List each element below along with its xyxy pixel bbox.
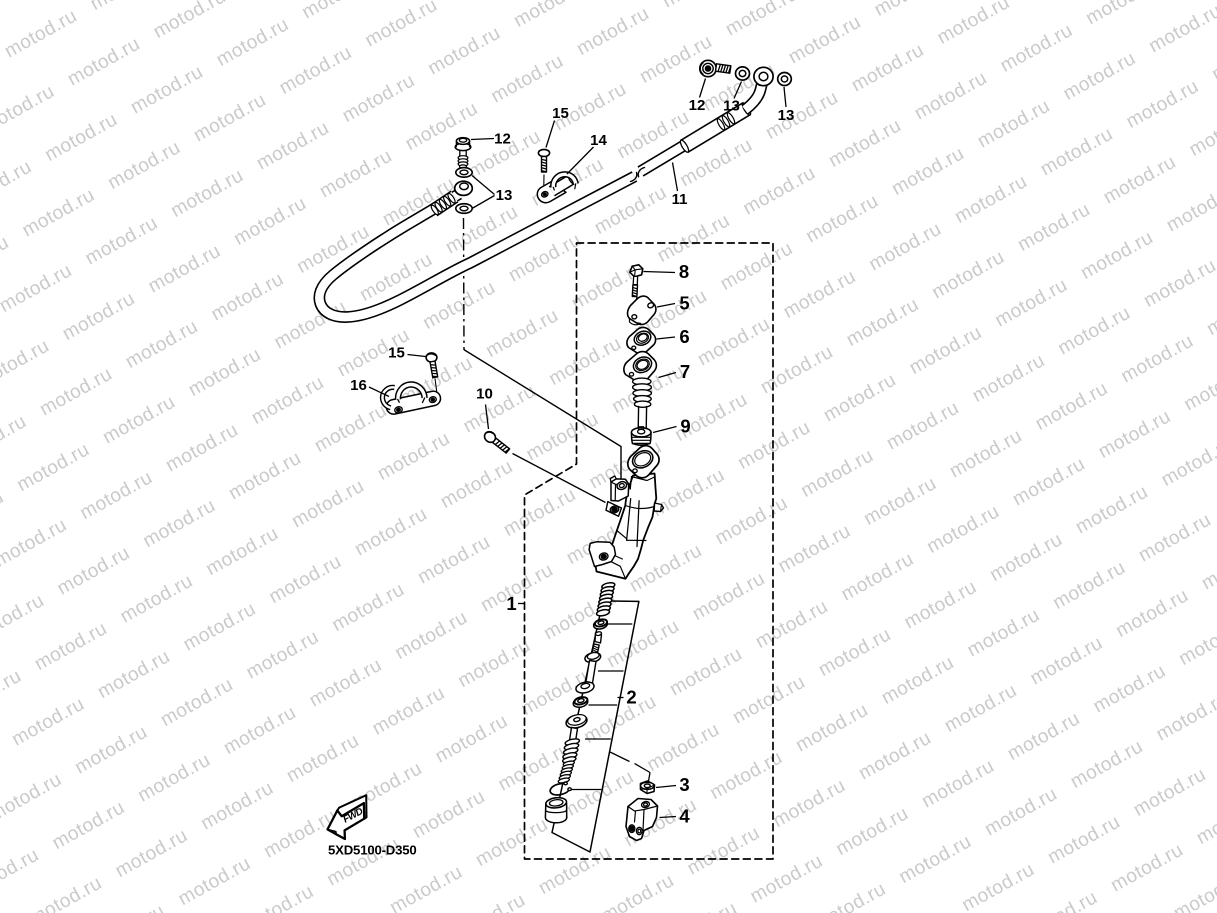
svg-text:8: 8	[679, 261, 689, 282]
svg-text:3: 3	[679, 774, 689, 795]
svg-text:4: 4	[679, 806, 690, 827]
svg-text:13: 13	[778, 107, 795, 124]
svg-text:15: 15	[552, 105, 569, 122]
svg-text:5: 5	[679, 293, 689, 314]
svg-text:13: 13	[496, 187, 513, 204]
svg-text:11: 11	[672, 191, 688, 208]
svg-text:13: 13	[723, 98, 740, 115]
svg-text:12: 12	[689, 97, 706, 114]
svg-text:5XD5100-D350: 5XD5100-D350	[328, 843, 417, 858]
svg-text:10: 10	[476, 386, 493, 403]
svg-text:15: 15	[388, 345, 405, 362]
svg-text:2: 2	[626, 687, 636, 708]
svg-text:6: 6	[679, 326, 689, 347]
svg-text:16: 16	[350, 377, 367, 394]
svg-text:9: 9	[680, 416, 690, 437]
svg-text:14: 14	[590, 132, 607, 149]
svg-text:1: 1	[506, 593, 516, 614]
svg-text:7: 7	[680, 361, 690, 382]
svg-text:12: 12	[494, 131, 511, 148]
